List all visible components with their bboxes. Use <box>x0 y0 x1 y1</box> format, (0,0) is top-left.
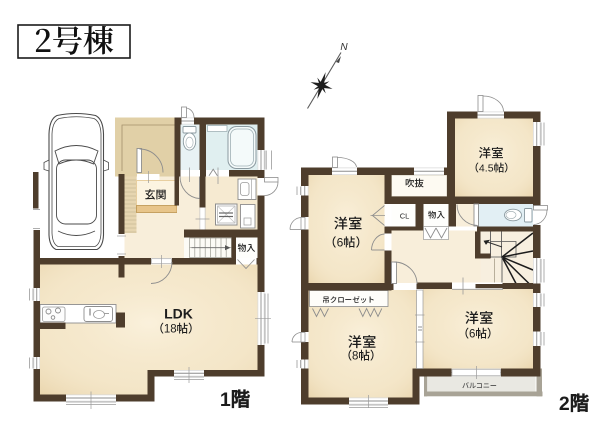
svg-text:CL: CL <box>400 212 410 221</box>
svg-text:1階: 1階 <box>220 383 251 412</box>
svg-text:（8帖）: （8帖） <box>341 348 382 364</box>
svg-text:物入: 物入 <box>428 209 446 221</box>
svg-text:（18帖）: （18帖） <box>152 321 199 337</box>
svg-text:LDK: LDK <box>164 306 193 322</box>
svg-text:2階: 2階 <box>559 387 590 416</box>
svg-text:（6帖）: （6帖） <box>325 234 368 251</box>
svg-text:洋室: 洋室 <box>478 143 503 162</box>
svg-text:吊クローゼット: 吊クローゼット <box>322 295 375 306</box>
svg-text:2号棟: 2号棟 <box>34 16 114 61</box>
svg-text:（6帖）: （6帖） <box>458 326 499 342</box>
svg-text:洋室: 洋室 <box>334 214 362 234</box>
svg-text:吹抜: 吹抜 <box>405 176 425 190</box>
svg-text:物入: 物入 <box>237 241 255 254</box>
svg-text:（4.5帖）: （4.5帖） <box>468 161 514 176</box>
svg-text:バルコニー: バルコニー <box>462 381 497 391</box>
svg-text:N: N <box>340 42 348 53</box>
svg-text:玄関: 玄関 <box>145 187 167 203</box>
